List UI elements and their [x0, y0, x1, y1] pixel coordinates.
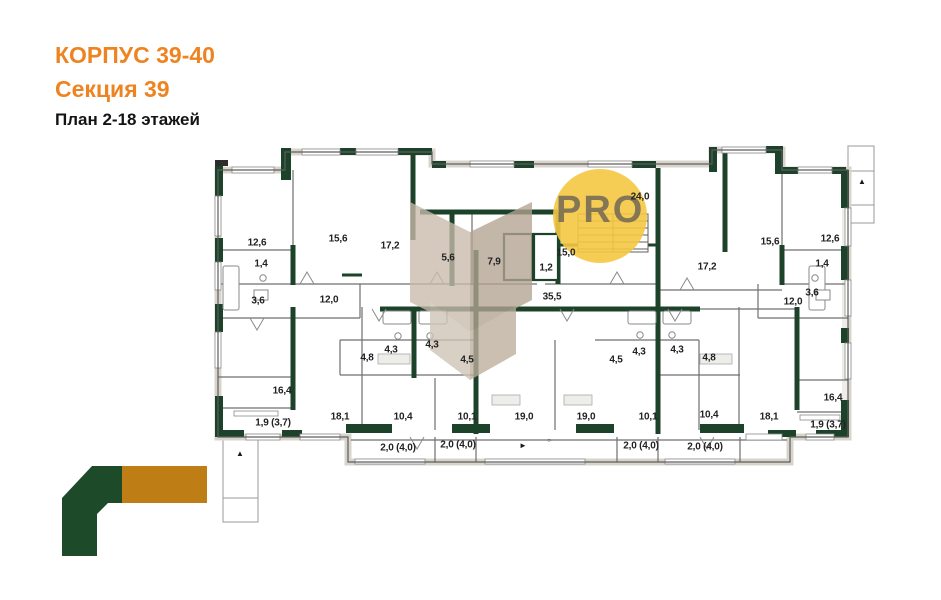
room-area-label: 35,5	[543, 291, 562, 302]
room-area-label: 4,5	[609, 354, 622, 365]
room-area-label: 7,9	[487, 256, 500, 267]
room-area-label: 4,5	[460, 354, 473, 365]
room-area-label: 2,0 (4,0)	[623, 440, 658, 451]
room-area-label: 2,0 (4,0)	[687, 441, 722, 452]
logo-orange-bar	[122, 466, 207, 503]
room-area-label: 10,1	[639, 411, 658, 422]
room-area-label: 1,9 (3,7)	[255, 417, 290, 428]
section-mark	[215, 160, 228, 166]
room-area-label: 12,6	[821, 233, 840, 244]
room-area-label: 15,6	[329, 233, 348, 244]
room-area-label: 4,3	[425, 339, 438, 350]
brand-logo	[62, 466, 207, 556]
circle-marker: ○	[547, 438, 551, 444]
triangle-marker: ▲	[236, 450, 244, 458]
room-area-label: 10,4	[700, 409, 719, 420]
room-area-label: 12,6	[248, 237, 267, 248]
room-area-label: 5,6	[441, 252, 454, 263]
room-area-label: 18,1	[331, 411, 350, 422]
room-area-label: 4,3	[384, 344, 397, 355]
room-area-label: 10,4	[394, 411, 413, 422]
room-area-label: 17,2	[381, 240, 400, 251]
room-area-label: 24,0	[631, 191, 650, 202]
room-area-label: 18,1	[760, 411, 779, 422]
room-area-label: 4,8	[702, 352, 715, 363]
triangle-marker: ▲	[858, 178, 866, 186]
room-area-label: 2,0 (4,0)	[440, 439, 475, 450]
room-area-label: 1,2	[539, 262, 552, 273]
room-area-label: 16,4	[824, 392, 843, 403]
room-area-label: 3,6	[251, 295, 264, 306]
room-area-label: 1,4	[254, 258, 267, 269]
room-area-label: 3,6	[805, 287, 818, 298]
room-area-label: 1,9 (3,7)	[810, 419, 845, 430]
room-area-label: 19,0	[515, 411, 534, 422]
room-area-label: 4,3	[670, 344, 683, 355]
arrow-marker: ►	[519, 442, 527, 450]
room-area-label: 15,0	[557, 247, 576, 258]
room-area-label: 4,3	[632, 346, 645, 357]
room-area-label: 16,4	[273, 385, 292, 396]
room-area-label: 10,1	[458, 411, 477, 422]
room-area-label: 19,0	[577, 411, 596, 422]
room-area-label: 2,0 (4,0)	[380, 442, 415, 453]
room-area-label: 12,0	[784, 296, 803, 307]
page: { "header": { "building": "КОРПУС 39-40"…	[0, 0, 941, 600]
room-area-label: 1,4	[815, 258, 828, 269]
room-area-label: 12,0	[320, 294, 339, 305]
room-area-label: 17,2	[698, 261, 717, 272]
room-area-label: 15,6	[761, 236, 780, 247]
room-area-label: 4,8	[360, 352, 373, 363]
logo-green-ribbon	[62, 466, 122, 556]
